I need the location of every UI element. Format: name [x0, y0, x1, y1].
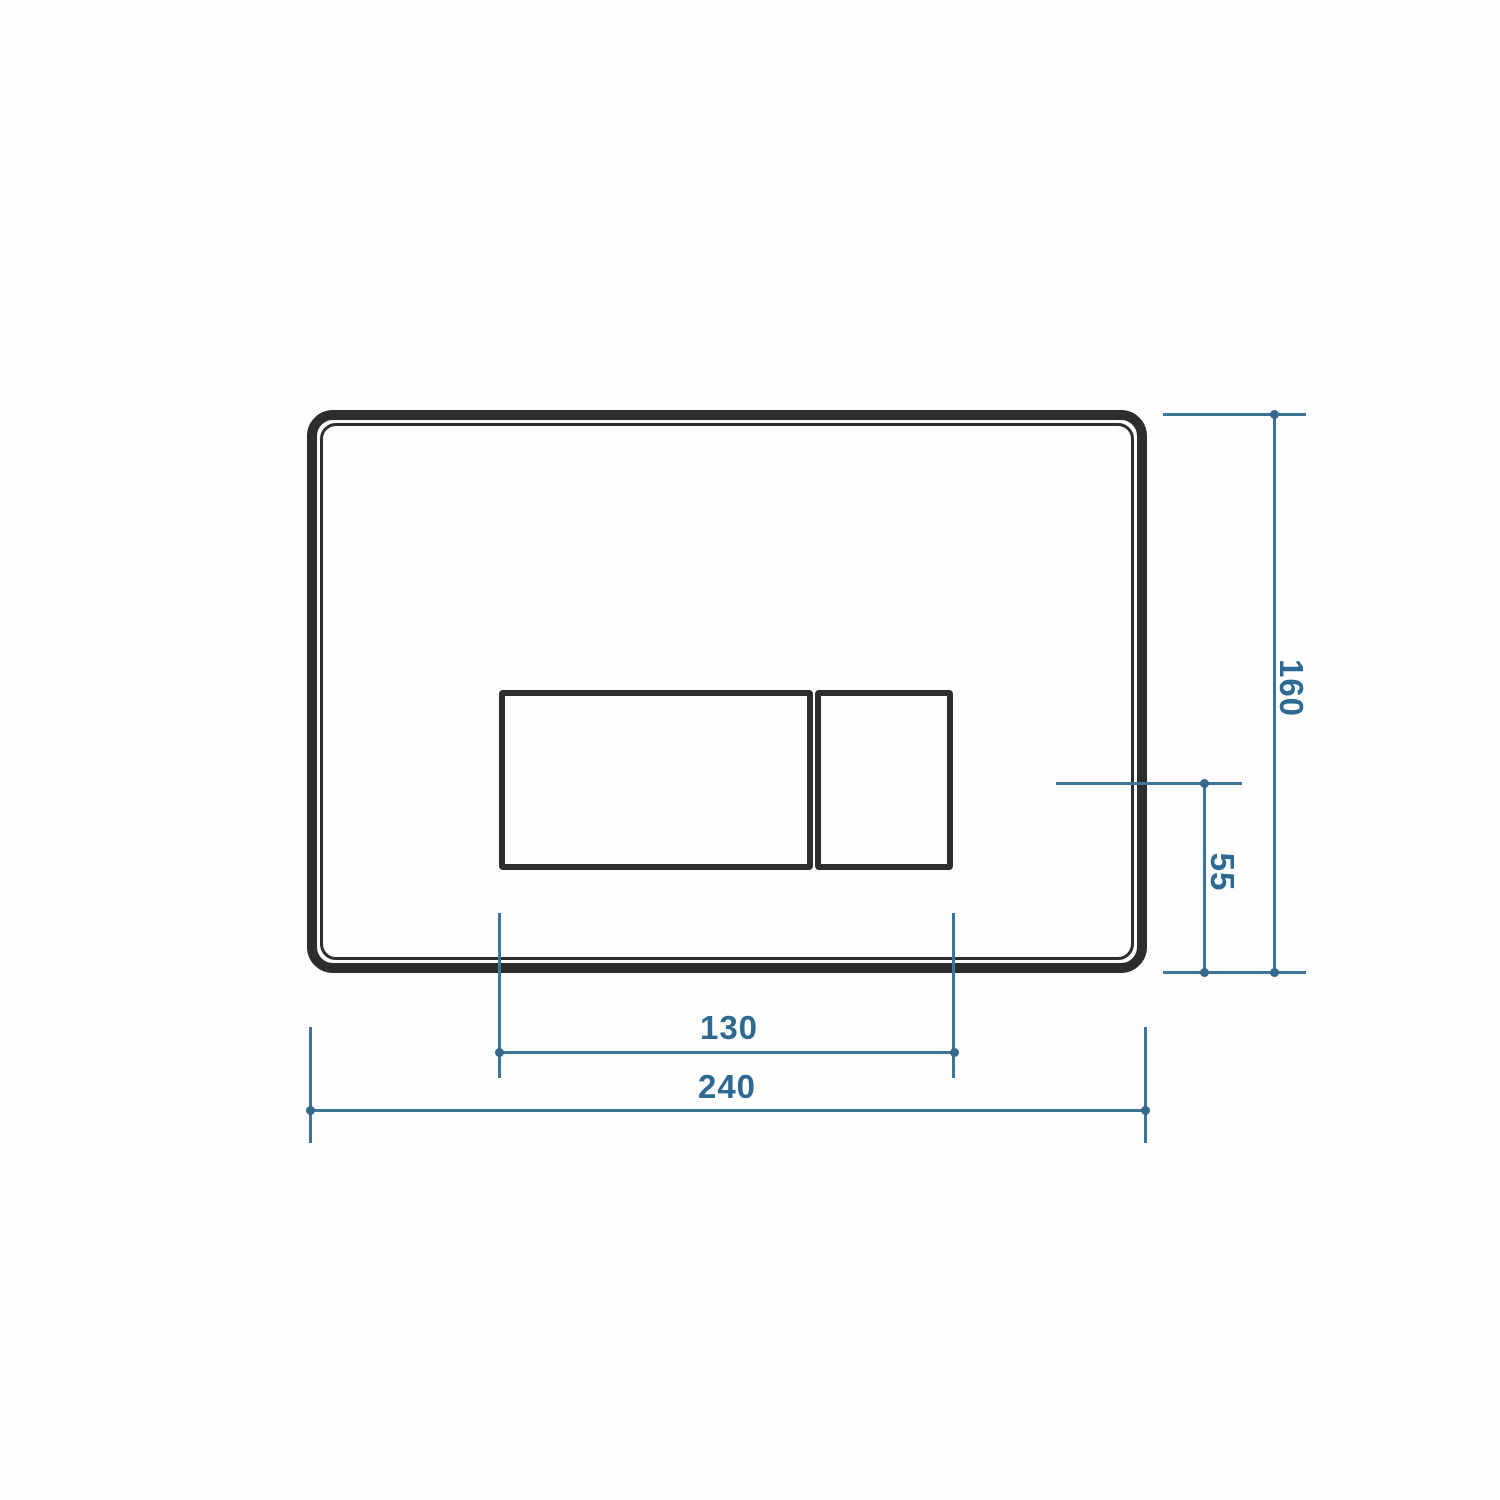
dimension-endpoint-dot: [1141, 1106, 1150, 1115]
dimension-endpoint-dot: [950, 1048, 959, 1057]
small-flush-button-outline: [815, 690, 953, 870]
dimension-line-width-240: [309, 1109, 1147, 1112]
dimension-endpoint-dot: [306, 1106, 315, 1115]
extension-line-height-bottom: [1163, 971, 1306, 974]
dim-label-55: 55: [1203, 853, 1241, 892]
extension-line-button-centerline: [1056, 782, 1242, 785]
dimension-endpoint-dot: [495, 1048, 504, 1057]
large-flush-button-outline: [499, 690, 813, 870]
extension-line-plate-left: [309, 1027, 312, 1143]
extension-line-plate-right: [1144, 1027, 1147, 1143]
dimension-endpoint-dot: [1270, 410, 1279, 419]
dim-label-130: 130: [700, 1009, 758, 1047]
dimension-endpoint-dot: [1270, 968, 1279, 977]
dim-label-240: 240: [698, 1068, 756, 1106]
dim-label-160: 160: [1272, 659, 1310, 717]
extension-line-height-top: [1163, 413, 1306, 416]
dimension-endpoint-dot: [1200, 779, 1209, 788]
dimension-line-width-130: [498, 1051, 955, 1054]
technical-drawing-canvas: 160 55 130 240: [0, 0, 1500, 1500]
dimension-endpoint-dot: [1200, 968, 1209, 977]
